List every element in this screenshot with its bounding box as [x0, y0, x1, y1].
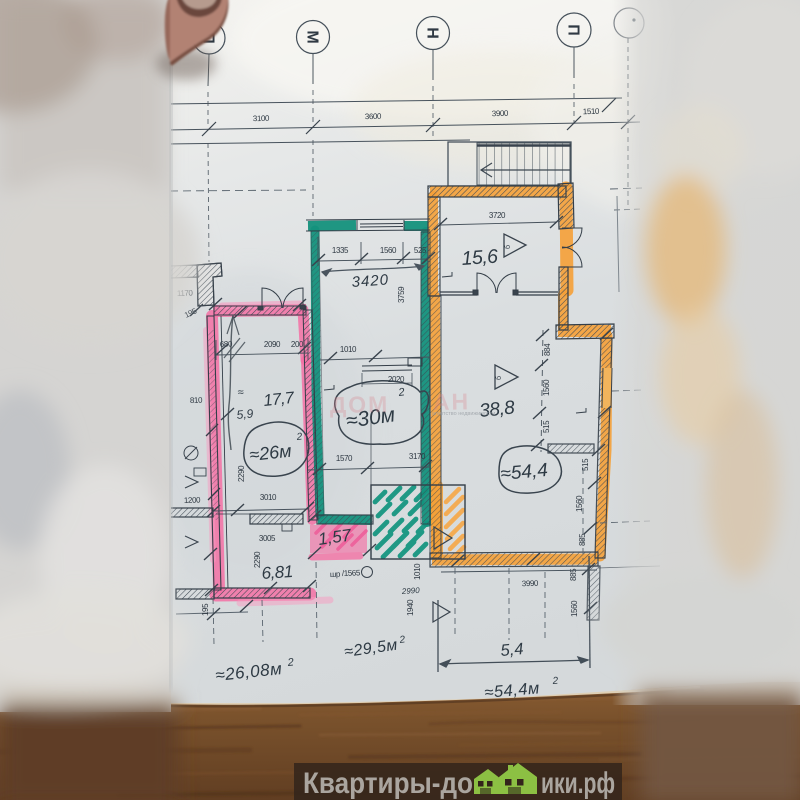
svg-text:шр: шр	[330, 570, 341, 579]
svg-text:3005: 3005	[259, 534, 276, 543]
svg-text:5,4: 5,4	[500, 640, 524, 660]
svg-text:885: 885	[578, 533, 587, 546]
svg-text:1335: 1335	[332, 246, 349, 255]
svg-text:1010: 1010	[413, 563, 422, 580]
svg-text:3010: 3010	[260, 493, 277, 502]
svg-text:1560: 1560	[380, 246, 397, 255]
svg-text:884: 884	[543, 343, 552, 356]
svg-text:1560: 1560	[542, 379, 551, 396]
svg-text:б: б	[495, 376, 503, 380]
svg-text:1510: 1510	[583, 107, 600, 117]
svg-text:515: 515	[542, 420, 551, 433]
svg-text:3170: 3170	[409, 452, 426, 461]
svg-text:/1565: /1565	[342, 568, 361, 578]
svg-text:810: 810	[190, 396, 203, 405]
svg-text:ики.рф: ики.рф	[541, 767, 615, 800]
svg-text:3990: 3990	[522, 579, 539, 589]
svg-text:3720: 3720	[489, 211, 506, 220]
svg-text:агентство недвижимости: агентство недвижимости	[432, 411, 495, 417]
svg-text:15,6: 15,6	[461, 245, 499, 270]
svg-text:38,8: 38,8	[478, 397, 516, 422]
svg-text:Квартиры-до: Квартиры-до	[303, 767, 473, 800]
svg-text:2: 2	[286, 656, 294, 669]
svg-text:2090: 2090	[264, 340, 281, 349]
svg-text:3600: 3600	[365, 112, 382, 121]
svg-text:2990: 2990	[401, 586, 421, 596]
svg-text:≈: ≈	[237, 386, 244, 399]
svg-text:1570: 1570	[336, 454, 353, 463]
svg-text:3420: 3420	[351, 271, 389, 291]
svg-text:3759: 3759	[397, 286, 406, 303]
svg-text:ДОМ: ДОМ	[330, 391, 390, 418]
svg-text:1940: 1940	[406, 599, 415, 616]
svg-text:2290: 2290	[237, 465, 246, 482]
svg-text:3100: 3100	[253, 114, 270, 123]
svg-text:200: 200	[291, 340, 304, 349]
svg-text:≈54,4: ≈54,4	[500, 460, 549, 485]
svg-text:6,81: 6,81	[261, 562, 293, 583]
svg-text:525: 525	[414, 246, 427, 255]
svg-text:1200: 1200	[184, 495, 201, 505]
svg-text:П: П	[565, 24, 582, 36]
svg-text:5,9: 5,9	[236, 406, 254, 422]
svg-text:515: 515	[581, 458, 590, 471]
svg-text:680: 680	[220, 339, 234, 349]
svg-text:3900: 3900	[492, 109, 509, 119]
svg-text:1560: 1560	[570, 600, 579, 617]
svg-text:б: б	[504, 245, 512, 249]
svg-text:195: 195	[201, 603, 210, 616]
svg-text:17,7: 17,7	[263, 389, 296, 410]
svg-text:Н: Н	[424, 27, 441, 39]
svg-text:1010: 1010	[340, 345, 357, 354]
svg-text:2290: 2290	[253, 551, 262, 568]
svg-text:М: М	[304, 30, 321, 43]
